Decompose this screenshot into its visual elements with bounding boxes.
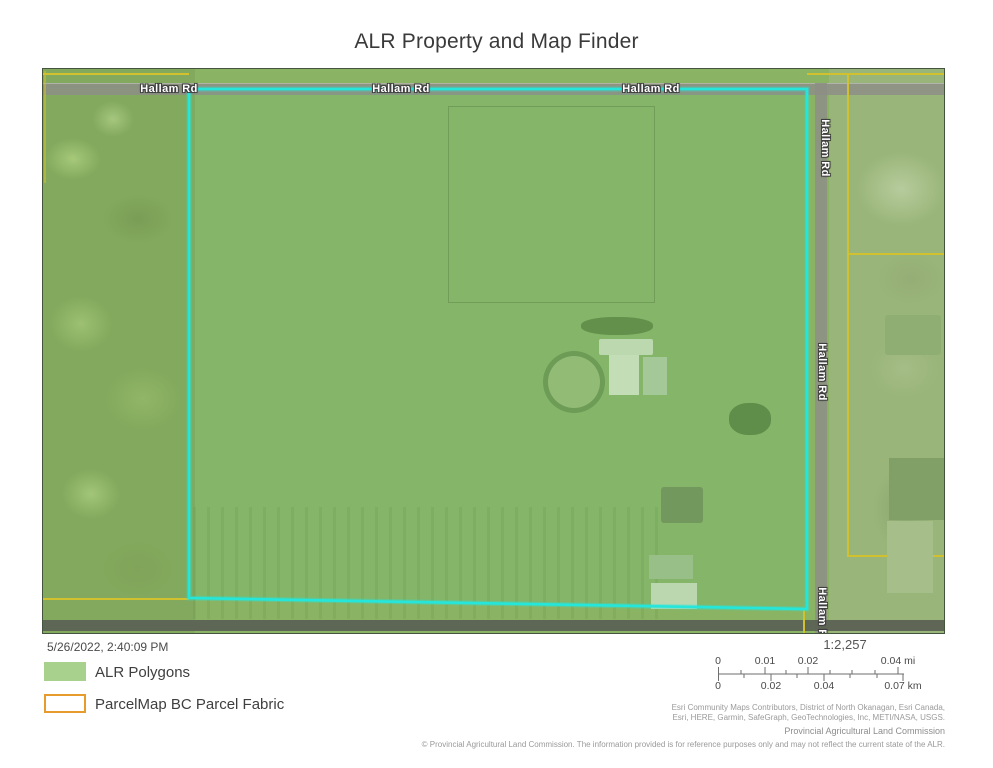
alr-polygons-swatch <box>44 662 86 681</box>
scale-km-label: 0.07 km <box>884 680 921 692</box>
export-timestamp: 5/26/2022, 2:40:09 PM <box>47 640 168 654</box>
legend-label-alr-polygons: ALR Polygons <box>95 664 190 681</box>
scale-km-label: 0 <box>715 680 721 692</box>
page-title: ALR Property and Map Finder <box>0 30 993 54</box>
map-attribution: Esri Community Maps Contributors, Distri… <box>672 703 945 723</box>
scale-km-label: 0.04 <box>814 680 834 692</box>
road-label-hallam-rd: Hallam Rd <box>819 119 831 176</box>
road-label-hallam-rd: Hallam Rd <box>140 83 197 95</box>
parcelmap-bc-swatch <box>44 694 86 713</box>
legend-label-parcelmap-bc: ParcelMap BC Parcel Fabric <box>95 696 284 713</box>
agency-credit: Provincial Agricultural Land Commission <box>784 726 945 736</box>
map-canvas[interactable]: Hallam Rd Hallam Rd Hallam Rd Hallam Rd … <box>42 68 945 634</box>
copyright-disclaimer: © Provincial Agricultural Land Commissio… <box>422 740 945 749</box>
scale-ratio: 1:2,257 <box>800 637 890 652</box>
road-label-hallam-rd: Hallam Rd <box>372 83 429 95</box>
road-label-hallam-rd: Hallam Rd <box>816 587 828 634</box>
road-label-hallam-rd: Hallam Rd <box>622 83 679 95</box>
selected-parcel-outline <box>43 69 944 633</box>
road-label-hallam-rd: Hallam Rd <box>816 343 828 400</box>
attribution-line: Esri, HERE, Garmin, SafeGraph, GeoTechno… <box>672 713 945 723</box>
attribution-line: Esri Community Maps Contributors, Distri… <box>672 703 945 713</box>
scale-km-label: 0.02 <box>761 680 781 692</box>
